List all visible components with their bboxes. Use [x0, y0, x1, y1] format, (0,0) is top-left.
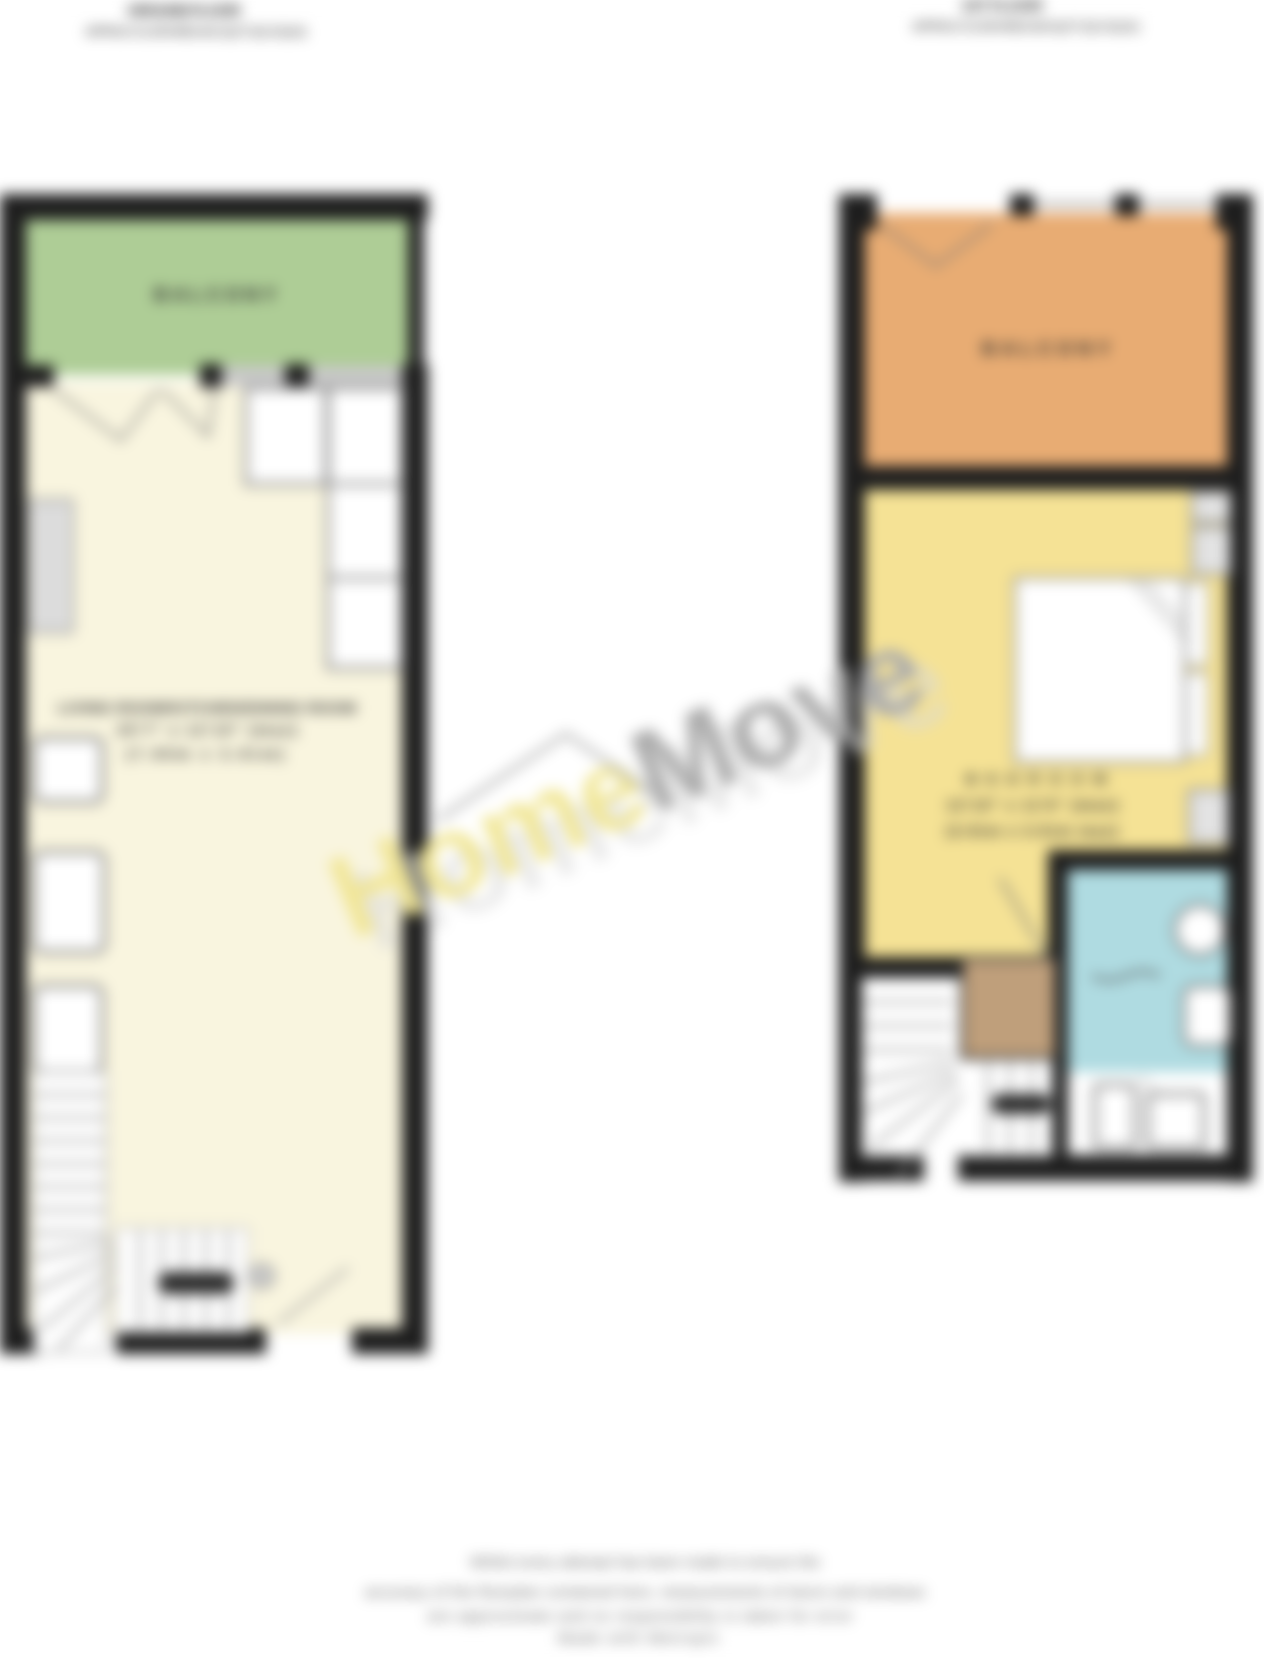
svg-text:APPROX. FLOOR AREA 334 SQ.FT.: APPROX. FLOOR AREA 334 SQ.FT. (31.0 SQ.M… [912, 19, 1140, 34]
svg-text:Whilst every attempt has been: Whilst every attempt has been made to en… [470, 1554, 820, 1571]
svg-text:are approximate and no respons: are approximate and no responsibility is… [428, 1608, 853, 1625]
svg-text:LIVING ROOM/KITCHEN/DINING ROO: LIVING ROOM/KITCHEN/DINING ROOM [58, 700, 356, 717]
svg-text:APPROX. FLOOR AREA 441 SQ.FT.: APPROX. FLOOR AREA 441 SQ.FT. (41.0 SQ.M… [85, 24, 307, 39]
svg-text:1ST FLOOR: 1ST FLOOR [961, 0, 1043, 15]
svg-text:accuracy of the floorplan cont: accuracy of the floorplan contained here… [365, 1584, 925, 1601]
svg-text:BALCONY: BALCONY [982, 339, 1110, 360]
svg-text:BALCONY: BALCONY [154, 285, 276, 306]
svg-text:12'10" x 11'6" (max): 12'10" x 11'6" (max) [946, 797, 1118, 814]
svg-text:Made with Metropix: Made with Metropix [558, 1630, 719, 1647]
svg-text:GROUND FLOOR: GROUND FLOOR [127, 3, 241, 20]
